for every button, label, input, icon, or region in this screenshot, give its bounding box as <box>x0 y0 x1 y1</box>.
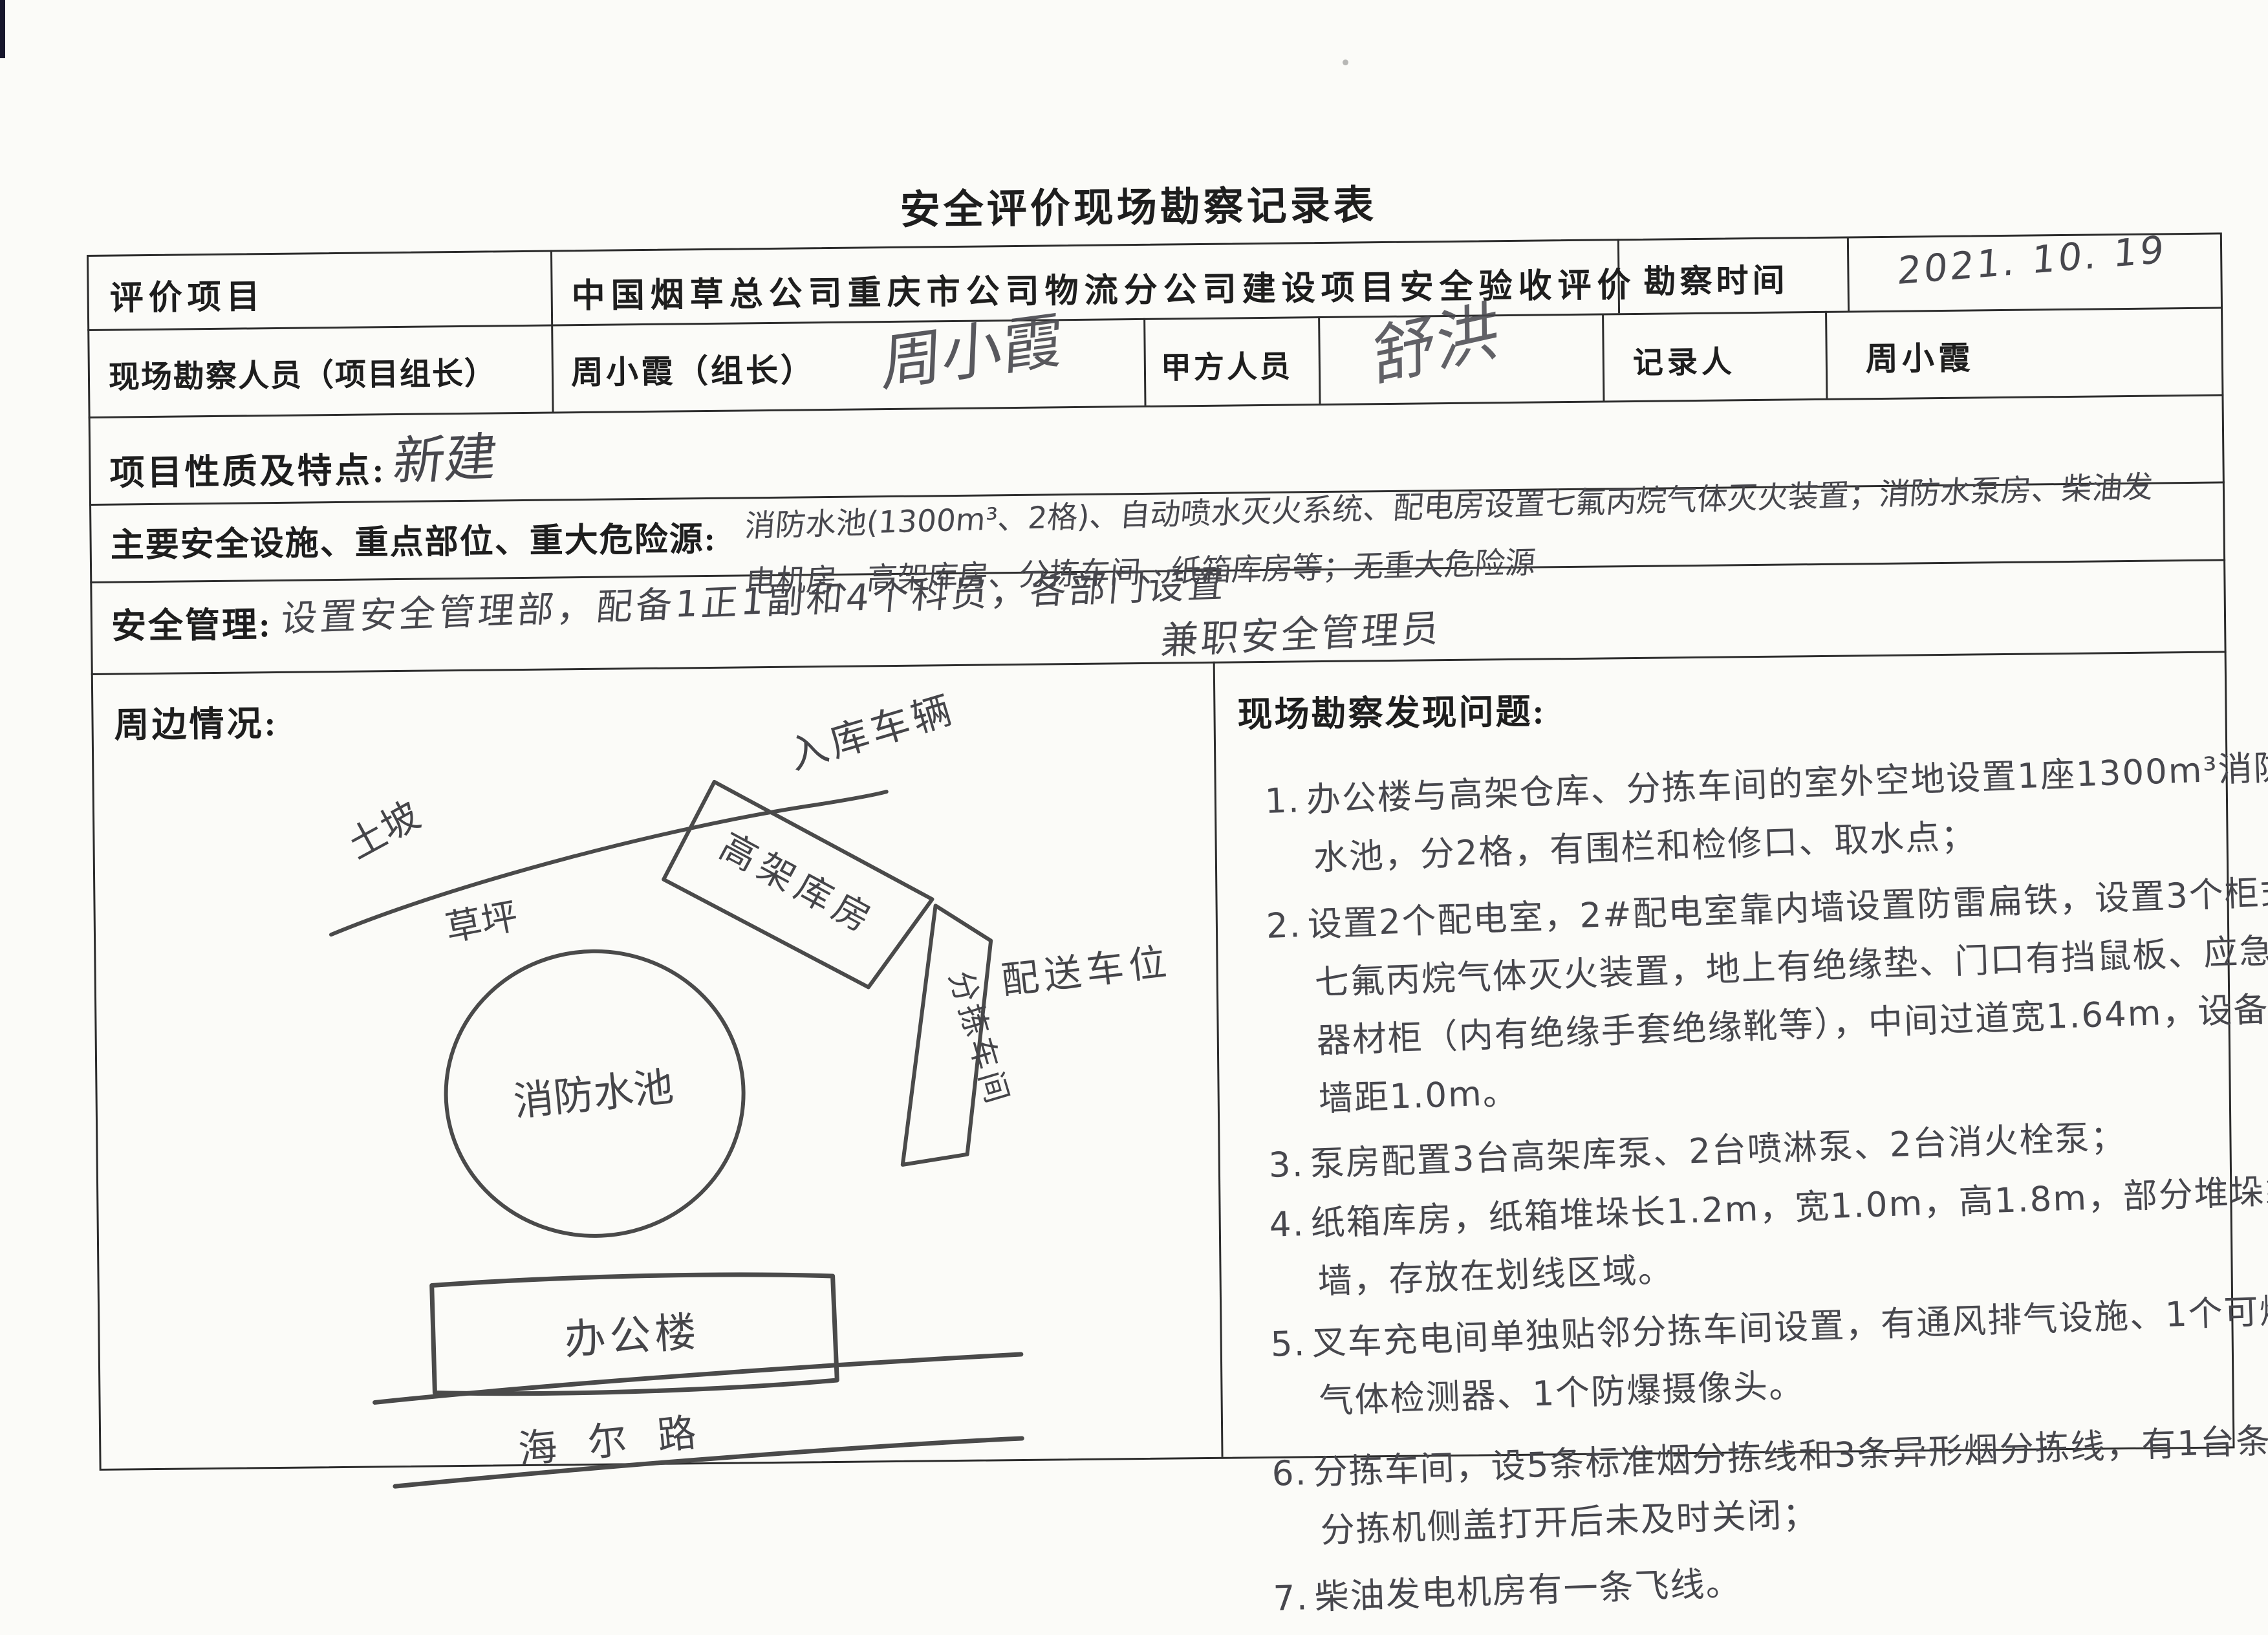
problem-item-number: 3. <box>1268 1136 1311 1195</box>
problem-item-number: 5. <box>1269 1315 1313 1374</box>
scanned-document-page: 安全评价现场勘察记录表 评价项目 中国烟草总公司重庆市公司物流分公司建设项目安全… <box>0 0 2268 1635</box>
surveyor-label: 现场勘察人员（项目组长） <box>109 347 497 396</box>
party-a-label: 甲方人员 <box>1161 341 1293 387</box>
problem-item-number: 6. <box>1271 1444 1314 1504</box>
lawn-label: 草坪 <box>442 895 521 949</box>
problem-item-number: 2. <box>1265 896 1308 956</box>
problem-item-text: 设置2个配电室，2#配电室靠内墙设置防雷扁铁，设置3个柜式七氟丙烷气体灭火装置，… <box>1307 872 2268 1119</box>
problem-item-text: 办公楼与高架仓库、分拣车间的室外空地设置1座1300m³消防水池，分2格，有围栏… <box>1306 748 2268 878</box>
rack-warehouse-label: 高架库房 <box>713 825 883 944</box>
safety-management-label: 安全管理: <box>111 596 273 649</box>
paper-sheet: 安全评价现场勘察记录表 评价项目 中国烟草总公司重庆市公司物流分公司建设项目安全… <box>0 0 2268 1635</box>
slope-label: 土坡 <box>340 793 427 867</box>
recorder-label: 记录人 <box>1632 336 1736 382</box>
project-nature-value-handwritten: 新建 <box>390 415 502 495</box>
project-nature-label: 项目性质及特点: <box>109 441 387 495</box>
problem-item-number: 1. <box>1264 772 1307 831</box>
problem-item-text: 分拣车间，设5条标准烟分拣线和3条异形烟分拣线，有1台条烟分拣机侧盖打开后未及时… <box>1313 1420 2268 1551</box>
surveyor-name: 周小霞（组长） <box>571 344 816 393</box>
inbound-vehicles-label: 入库车辆 <box>784 686 960 779</box>
problem-item-number: 4. <box>1268 1195 1312 1255</box>
site-sketch: 土坡 草坪 入库车辆 高架库房 分拣车间 配送车位 消防水池 办公楼 海尔路 <box>91 662 1223 1634</box>
problem-item-text: 叉车充电间单独贴邻分拣车间设置，有通风排气设施、1个可燃气体检测器、1个防爆摄像… <box>1312 1291 2268 1421</box>
problem-item-text: 纸箱库房，纸箱堆垛长1.2m，宽1.0m，高1.8m，部分堆垛靠墙，存放在划线区… <box>1310 1171 2268 1301</box>
eval-project-label: 评价项目 <box>109 269 265 319</box>
delivery-parking-label: 配送车位 <box>999 939 1174 1002</box>
road-label: 海尔路 <box>516 1407 729 1473</box>
problem-item-text: 柴油发电机房有一条飞线。 <box>1314 1564 1742 1618</box>
problem-item-number: 7. <box>1272 1569 1315 1629</box>
survey-time-label: 勘察时间 <box>1643 254 1789 302</box>
fire-pool-label: 消防水池 <box>512 1063 676 1125</box>
problem-item-2: 2.设置2个配电室，2#配电室靠内墙设置防雷扁铁，设置3个柜式七氟丙烷气体灭火装… <box>1265 863 2268 1131</box>
road-line-upper <box>374 1354 1022 1402</box>
recorder-value: 周小霞 <box>1865 332 1974 380</box>
problems-label: 现场勘察发现问题: <box>1237 682 1546 737</box>
main-safety-facilities-label: 主要安全设施、重点部位、重大危险源: <box>110 512 717 567</box>
office-building-label: 办公楼 <box>563 1308 701 1365</box>
document-title: 安全评价现场勘察记录表 <box>841 171 1436 236</box>
